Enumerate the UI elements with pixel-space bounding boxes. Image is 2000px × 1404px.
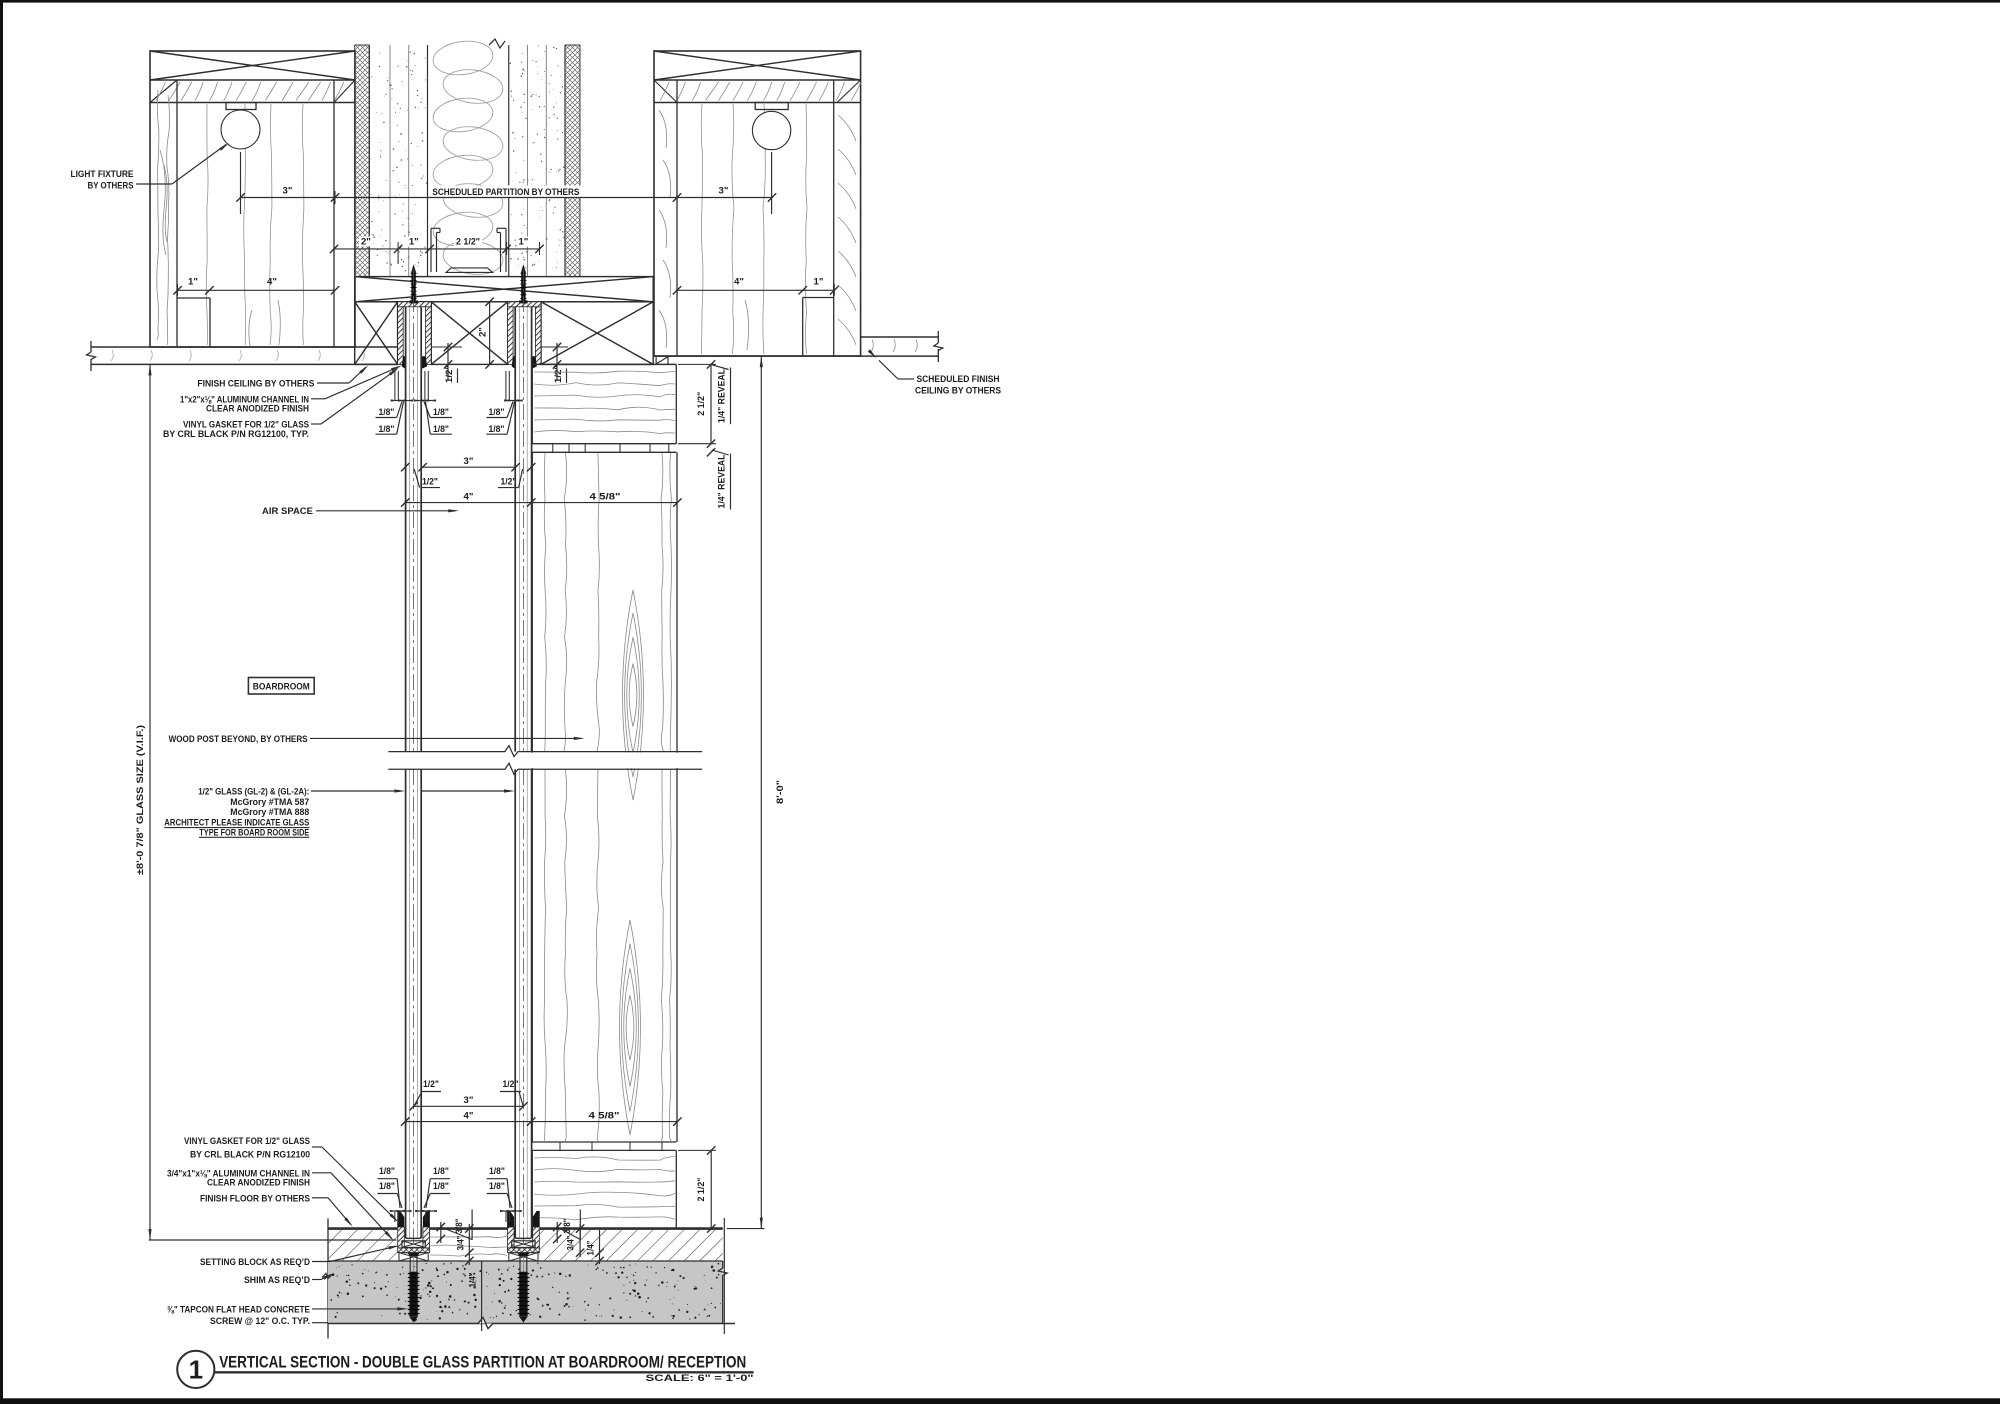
svg-text:1": 1" <box>409 237 419 248</box>
svg-text:1/8": 1/8" <box>379 1181 395 1192</box>
svg-text:BY CRL BLACK P/N RG12100, TYP.: BY CRL BLACK P/N RG12100, TYP. <box>163 429 309 440</box>
svg-text:1/8": 1/8" <box>489 424 505 435</box>
svg-text:3/8": 3/8" <box>562 1219 572 1234</box>
svg-text:1": 1" <box>814 277 824 288</box>
svg-text:8'-0": 8'-0" <box>775 780 786 804</box>
svg-text:VINYL GASKET FOR 1/2" GLASS: VINYL GASKET FOR 1/2" GLASS <box>184 1136 311 1147</box>
svg-text:BY OTHERS: BY OTHERS <box>88 181 134 192</box>
svg-text:2 1/2": 2 1/2" <box>696 1178 707 1202</box>
svg-text:1/8": 1/8" <box>433 1166 449 1177</box>
svg-text:TYPE FOR BOARD ROOM SIDE: TYPE FOR BOARD ROOM SIDE <box>199 827 309 838</box>
svg-text:WOOD POST BEYOND, BY OTHERS: WOOD POST BEYOND, BY OTHERS <box>169 734 308 745</box>
svg-text:1/4": 1/4" <box>586 1241 596 1256</box>
svg-text:1/4" REVEAL: 1/4" REVEAL <box>717 369 727 423</box>
svg-text:3/4": 3/4" <box>566 1236 576 1251</box>
svg-text:BY CRL BLACK P/N RG12100: BY CRL BLACK P/N RG12100 <box>190 1150 310 1161</box>
svg-text:1/2": 1/2" <box>553 365 564 383</box>
svg-text:1/8": 1/8" <box>379 424 395 435</box>
svg-text:1": 1" <box>518 237 528 248</box>
svg-text:3": 3" <box>464 456 474 467</box>
svg-text:AIR SPACE: AIR SPACE <box>262 506 314 517</box>
svg-text:4": 4" <box>464 1110 474 1121</box>
svg-text:1/8": 1/8" <box>433 424 449 435</box>
svg-text:BOARDROOM: BOARDROOM <box>253 681 310 692</box>
svg-text:⅜" TAPCON FLAT HEAD CONCRETE: ⅜" TAPCON FLAT HEAD CONCRETE <box>167 1304 311 1315</box>
svg-text:1/8": 1/8" <box>489 407 505 418</box>
svg-text:VERTICAL SECTION - DOUBLE GLAS: VERTICAL SECTION - DOUBLE GLASS PARTITIO… <box>219 1352 746 1371</box>
svg-text:1/2": 1/2" <box>423 1079 439 1090</box>
svg-text:3/4": 3/4" <box>456 1236 466 1251</box>
svg-text:CLEAR ANODIZED FINISH: CLEAR ANODIZED FINISH <box>206 404 309 415</box>
svg-text:1/2": 1/2" <box>444 365 455 383</box>
svg-text:3/8": 3/8" <box>454 1219 464 1234</box>
svg-text:2": 2" <box>361 237 371 248</box>
svg-text:1/8": 1/8" <box>433 407 449 418</box>
svg-text:4": 4" <box>464 491 474 502</box>
svg-text:1/8": 1/8" <box>379 1166 395 1177</box>
svg-text:1/8": 1/8" <box>489 1166 505 1177</box>
svg-text:1": 1" <box>188 277 198 288</box>
svg-text:3": 3" <box>283 186 293 197</box>
svg-text:CEILING BY OTHERS: CEILING BY OTHERS <box>915 386 1002 397</box>
svg-text:2 1/2": 2 1/2" <box>456 237 480 248</box>
svg-text:SETTING BLOCK AS REQ’D: SETTING BLOCK AS REQ’D <box>200 1257 310 1268</box>
svg-text:1/2": 1/2" <box>501 476 517 487</box>
svg-text:FINISH CEILING BY OTHERS: FINISH CEILING BY OTHERS <box>197 379 315 390</box>
svg-text:SCHEDULED FINISH: SCHEDULED FINISH <box>917 374 1000 385</box>
svg-text:CLEAR ANODIZED FINISH: CLEAR ANODIZED FINISH <box>207 1178 310 1189</box>
svg-text:1/8": 1/8" <box>379 407 395 418</box>
svg-text:4 5/8": 4 5/8" <box>589 1110 620 1121</box>
svg-text:±8'-0 7/8" GLASS SIZE (V.I.F.): ±8'-0 7/8" GLASS SIZE (V.I.F.) <box>134 725 145 875</box>
svg-text:1/8": 1/8" <box>489 1181 505 1192</box>
svg-text:McGrory #TMA 888: McGrory #TMA 888 <box>230 807 310 818</box>
svg-text:SHIM AS REQ’D: SHIM AS REQ’D <box>244 1275 310 1286</box>
svg-text:SCREW @ 12" O.C. TYP.: SCREW @ 12" O.C. TYP. <box>210 1316 310 1327</box>
svg-text:SCALE: 6" = 1'-0": SCALE: 6" = 1'-0" <box>646 1373 754 1383</box>
svg-text:4 5/8": 4 5/8" <box>590 491 621 502</box>
svg-text:1/4": 1/4" <box>468 1273 478 1288</box>
svg-text:2 1/2": 2 1/2" <box>696 392 707 416</box>
svg-text:SCHEDULED PARTITION BY OTHERS: SCHEDULED PARTITION BY OTHERS <box>432 187 580 198</box>
svg-text:3": 3" <box>464 1095 474 1106</box>
svg-text:4": 4" <box>734 277 744 288</box>
svg-text:2": 2" <box>478 327 489 337</box>
svg-text:4": 4" <box>267 277 277 288</box>
svg-text:3": 3" <box>719 186 729 197</box>
svg-text:1/4" REVEAL: 1/4" REVEAL <box>717 454 727 508</box>
svg-text:FINISH FLOOR BY OTHERS: FINISH FLOOR BY OTHERS <box>200 1193 311 1204</box>
svg-text:1/2": 1/2" <box>503 1079 519 1090</box>
svg-text:1: 1 <box>189 1355 203 1385</box>
svg-text:1/8": 1/8" <box>433 1181 449 1192</box>
svg-text:LIGHT FIXTURE: LIGHT FIXTURE <box>71 169 135 180</box>
svg-text:1/2": 1/2" <box>422 476 438 487</box>
